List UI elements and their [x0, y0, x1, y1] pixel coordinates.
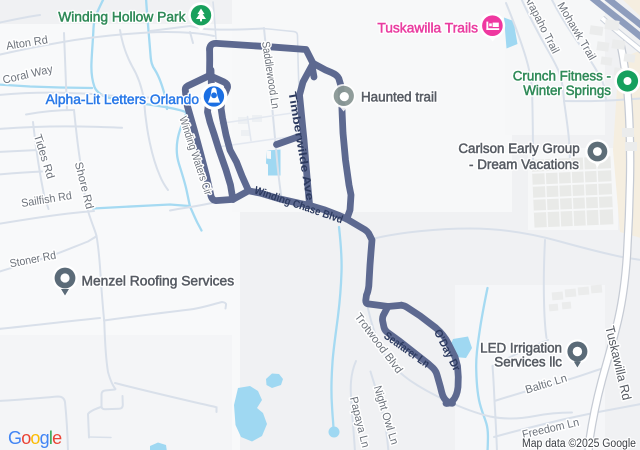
svg-text:Google: Google	[8, 428, 62, 448]
svg-text:Alpha-Lit Letters Orlando: Alpha-Lit Letters Orlando	[46, 92, 200, 107]
svg-text:Winter Springs: Winter Springs	[523, 83, 611, 98]
svg-text:Winding Hollow Park: Winding Hollow Park	[58, 10, 185, 25]
svg-text:- Dream Vacations: - Dream Vacations	[469, 157, 579, 172]
svg-text:Crunch Fitness -: Crunch Fitness -	[513, 69, 611, 84]
svg-text:Map data ©2025 Google: Map data ©2025 Google	[522, 438, 636, 450]
svg-text:Services llc: Services llc	[494, 355, 562, 370]
svg-text:Carlson Early Group: Carlson Early Group	[458, 141, 579, 156]
svg-text:Haunted trail: Haunted trail	[361, 90, 437, 105]
svg-text:Tuskawilla Trails: Tuskawilla Trails	[377, 21, 478, 36]
svg-text:Menzel Roofing Services: Menzel Roofing Services	[82, 274, 235, 289]
svg-text:LED Irrigation: LED Irrigation	[480, 341, 562, 356]
